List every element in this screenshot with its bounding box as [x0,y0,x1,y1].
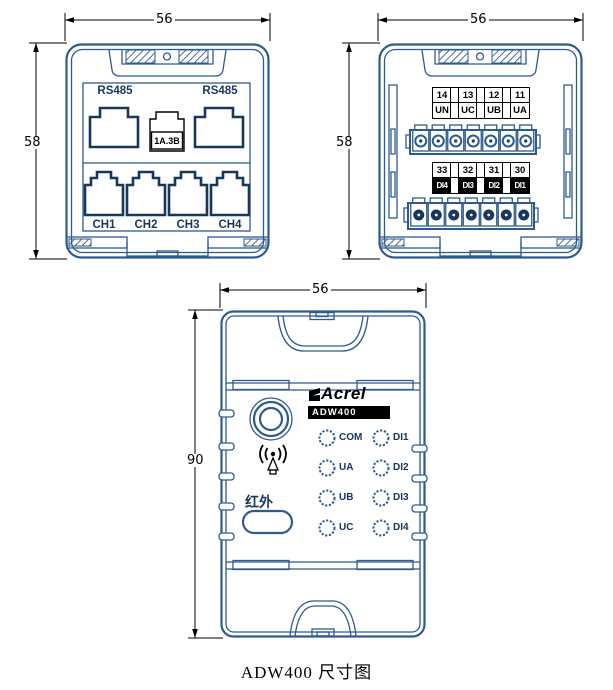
terminal-cell: UC [458,102,478,119]
terminal-block-di [404,198,538,229]
terminal-cell: UB [484,102,504,119]
width-dimension-label: 56 [154,13,175,26]
terminal-table-di: 33 32 31 30 DI4 DI3 DI2 DI1 [433,163,529,193]
width-dimension-label: 56 [310,283,331,296]
ch2-label: CH2 [126,219,166,231]
terminal-cell: DI2 [484,177,504,194]
hatch-block [439,50,468,63]
bottom-divider-clips [226,561,420,570]
infrared-window [243,511,292,533]
led-label-di2: DI2 [393,461,409,475]
screw-terminals [413,125,534,151]
height-dimension-label: 90 [185,454,206,467]
width-dimension-label: 56 [468,13,489,26]
dimension-height-58 [342,43,380,259]
top-notch [422,50,539,76]
led-label-ua: UA [339,461,353,475]
ch3-port [169,172,207,215]
led-di2 [374,461,389,476]
top-notch [278,313,368,352]
hatch-block [126,50,155,63]
led-uc [320,521,335,536]
hatch-block [179,50,208,63]
round-button [250,398,292,440]
rs485-port-left [90,108,138,147]
ch1-port [85,172,123,215]
led-com [320,431,335,446]
led-ua [320,461,335,476]
led-label-uc: UC [339,521,353,535]
ch2-port [127,172,165,215]
mid-connector-label: 1A.3B [150,136,184,146]
screw-hole [164,53,171,60]
view-front-panel: 56 90 Acrel ADW400 红外 COM UA UB UC DI1 D… [183,278,445,658]
terminal-cell: DI3 [458,177,478,194]
adw400-dimension-drawing: 56 58 RS485 RS485 1A.3B CH1 CH2 CH3 CH4 [0,0,613,690]
antenna-icon [260,445,286,474]
infrared-label: 红外 [245,492,273,512]
ch4-port [211,172,249,215]
height-dimension-label: 58 [334,136,355,149]
terminal-side-device [380,45,582,258]
view-comm-side: 56 58 RS485 RS485 1A.3B CH1 CH2 CH3 CH4 [20,5,315,275]
led-di1 [374,431,389,446]
bottom-notch [290,601,356,636]
terminal-cell: UN [432,102,452,119]
led-di3 [374,491,389,506]
ch1-label: CH1 [84,219,124,231]
brand-name: Acrel [321,385,366,403]
rs485-port-right [195,108,243,147]
rs485-label-right: RS485 [192,85,248,97]
rs485-label-left: RS485 [87,85,143,97]
view-terminal-side: 56 58 14 13 12 11 UN UC UB UA 33 32 31 [330,5,613,275]
led-ub [320,491,335,506]
model-name: ADW400 [312,407,357,419]
led-label-di1: DI1 [393,431,409,445]
screw-hole [477,53,484,60]
height-dimension-label: 58 [22,136,43,149]
terminal-cell: DI4 [432,177,452,194]
led-label-com: COM [339,431,362,445]
terminal-cell: DI1 [510,177,530,194]
terminal-block-voltage [406,125,540,154]
led-indicators [320,431,389,536]
led-label-di3: DI3 [393,491,409,505]
dimension-height-58 [29,43,67,259]
led-label-ub: UB [339,491,353,505]
terminal-side-drawing [330,5,613,275]
led-di4 [374,521,389,536]
led-label-di4: DI4 [393,521,409,535]
terminal-cell: UA [510,102,530,119]
terminal-table-voltage: 14 13 12 11 UN UC UB UA [433,88,529,118]
dimension-height-90 [188,310,223,638]
top-notch [109,50,226,76]
ch4-label: CH4 [210,219,250,231]
drawing-caption: ADW400 尺寸图 [0,658,613,683]
hatch-block [492,50,521,63]
ch3-label: CH3 [168,219,208,231]
